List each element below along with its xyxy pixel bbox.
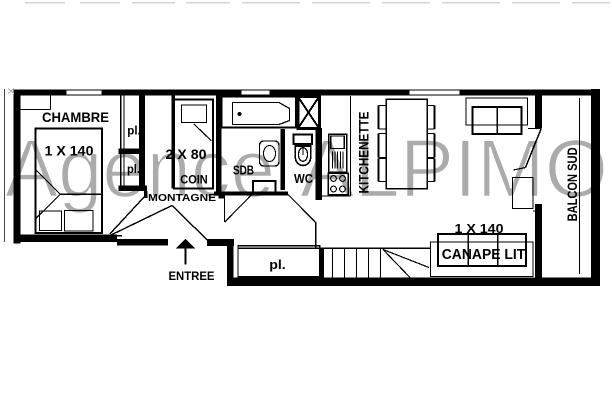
svg-text:KITCHENETTE: KITCHENETTE [356, 112, 372, 194]
svg-text:CANAPE LIT: CANAPE LIT [442, 247, 526, 263]
svg-text:SDB: SDB [233, 164, 254, 178]
svg-text:WC: WC [294, 172, 313, 186]
svg-text:BALCON SUD: BALCON SUD [564, 147, 580, 221]
svg-text:1 X 140: 1 X 140 [455, 221, 504, 236]
svg-text:CHAMBRE: CHAMBRE [42, 109, 109, 125]
svg-text:ENTREE: ENTREE [169, 269, 215, 283]
svg-text:pl.: pl. [127, 125, 141, 137]
svg-text:COIN: COIN [180, 173, 208, 187]
svg-text:pl.: pl. [127, 164, 140, 176]
svg-text:pl.: pl. [269, 258, 286, 272]
svg-text:2 X 80: 2 X 80 [166, 146, 207, 162]
svg-text:MONTAGNE: MONTAGNE [148, 192, 216, 204]
svg-text:1 X 140: 1 X 140 [45, 143, 94, 159]
